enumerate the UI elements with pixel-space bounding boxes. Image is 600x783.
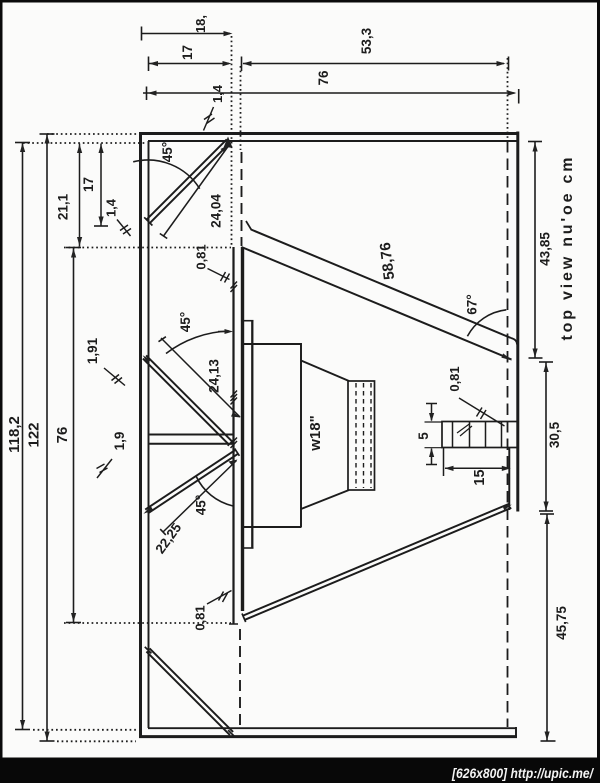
svg-text:1,4: 1,4 [104, 198, 119, 217]
svg-text:45°: 45° [194, 495, 209, 515]
svg-text:45°: 45° [178, 312, 193, 332]
svg-text:5: 5 [416, 432, 431, 440]
svg-text:1,91: 1,91 [85, 337, 100, 364]
svg-text:[626x800] http://upic.me/: [626x800] http://upic.me/ [451, 766, 594, 781]
svg-text:30,5: 30,5 [547, 421, 562, 448]
svg-text:0,81: 0,81 [193, 605, 208, 630]
svg-text:0,81: 0,81 [447, 366, 462, 391]
svg-text:43,85: 43,85 [538, 232, 553, 266]
svg-text:118,2: 118,2 [6, 416, 23, 453]
svg-text:53,3: 53,3 [359, 27, 374, 54]
svg-text:45°: 45° [160, 142, 175, 162]
svg-text:1,9: 1,9 [112, 432, 127, 451]
svg-text:67°: 67° [465, 294, 480, 314]
svg-text:17: 17 [180, 45, 195, 60]
svg-text:24,04: 24,04 [209, 194, 224, 228]
svg-text:w18": w18" [307, 415, 324, 451]
svg-text:76: 76 [316, 70, 331, 86]
svg-text:17: 17 [81, 177, 96, 192]
svg-text:18,: 18, [193, 15, 208, 33]
svg-text:24,13: 24,13 [207, 359, 222, 393]
svg-text:21,1: 21,1 [56, 193, 71, 220]
svg-text:1,4: 1,4 [210, 84, 225, 103]
svg-text:76: 76 [54, 427, 71, 444]
svg-text:122: 122 [26, 422, 43, 447]
svg-text:15: 15 [472, 469, 488, 485]
svg-text:45,75: 45,75 [554, 606, 569, 640]
svg-text:0,81: 0,81 [194, 244, 209, 269]
